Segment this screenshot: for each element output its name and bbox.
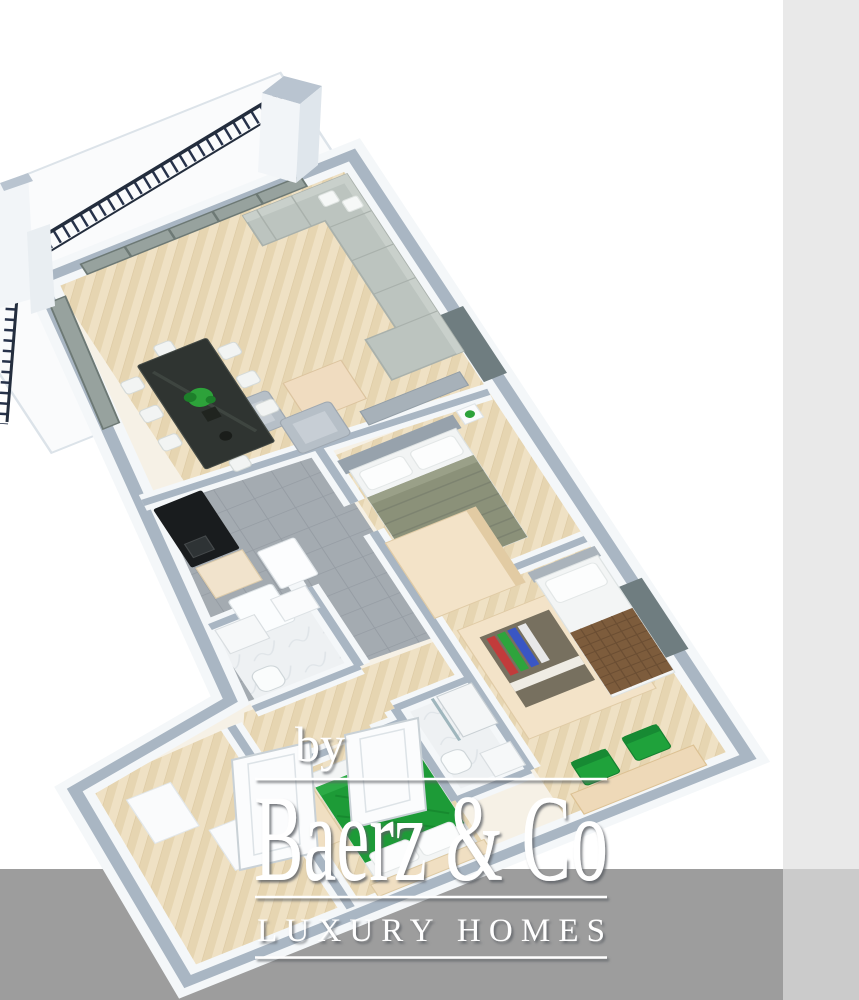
screenshot-root: by Baerz & Co LUXURY HOMES	[0, 0, 859, 1000]
floorplan-image: by Baerz & Co LUXURY HOMES	[0, 0, 859, 1000]
watermark-brand: Baerz & Co	[254, 770, 608, 907]
chimney-pillar	[258, 76, 322, 183]
watermark-prefix: by	[295, 716, 345, 772]
